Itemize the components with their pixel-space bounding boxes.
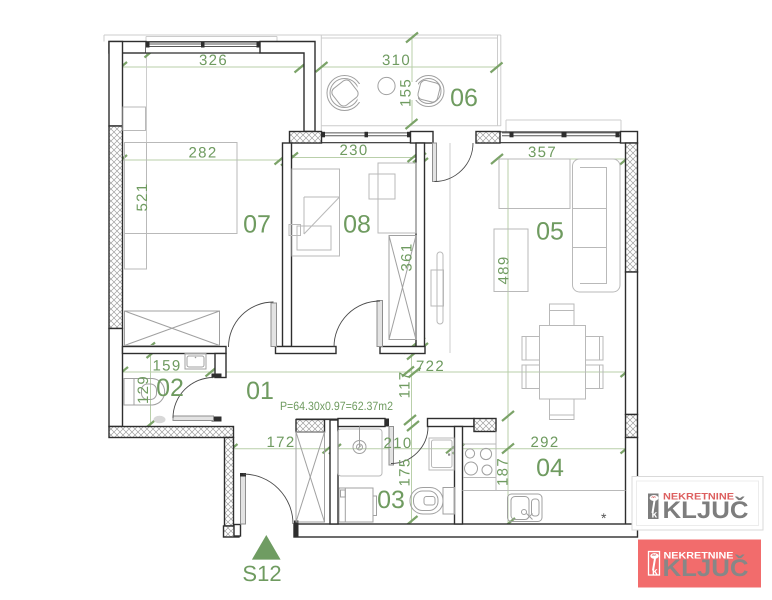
svg-text:01: 01	[246, 377, 274, 405]
svg-text:357: 357	[528, 144, 557, 161]
svg-text:KLJUČ: KLJUČ	[663, 496, 749, 524]
svg-text:722: 722	[416, 358, 445, 375]
svg-text:187: 187	[495, 457, 512, 486]
svg-text:117: 117	[397, 371, 414, 399]
svg-text:159: 159	[153, 358, 182, 375]
svg-text:310: 310	[382, 52, 411, 69]
svg-text:k: k	[652, 510, 658, 521]
svg-text:129: 129	[135, 375, 152, 404]
svg-text:KLJUČ: KLJUČ	[663, 554, 749, 582]
svg-text:P=64.30x0.97=62.37m2: P=64.30x0.97=62.37m2	[280, 399, 393, 413]
svg-text:361: 361	[399, 243, 416, 272]
svg-text:521: 521	[134, 183, 151, 212]
svg-text:S12: S12	[242, 561, 281, 586]
svg-text:292: 292	[531, 434, 560, 451]
svg-text:06: 06	[450, 84, 478, 112]
svg-text:02: 02	[156, 374, 184, 402]
svg-text:155: 155	[398, 78, 415, 107]
svg-text:230: 230	[340, 142, 369, 159]
svg-text:07: 07	[243, 211, 271, 239]
svg-text:05: 05	[536, 218, 564, 246]
svg-text:210: 210	[384, 435, 413, 452]
svg-text:489: 489	[496, 256, 513, 285]
svg-text:08: 08	[343, 211, 371, 239]
svg-text:03: 03	[377, 486, 405, 514]
svg-text:172: 172	[267, 434, 296, 451]
svg-text:04: 04	[536, 454, 564, 482]
svg-text:326: 326	[199, 52, 228, 69]
svg-text:175: 175	[397, 458, 414, 487]
svg-text:*: *	[601, 510, 607, 526]
svg-text:282: 282	[189, 145, 218, 162]
svg-text:k: k	[652, 567, 658, 578]
